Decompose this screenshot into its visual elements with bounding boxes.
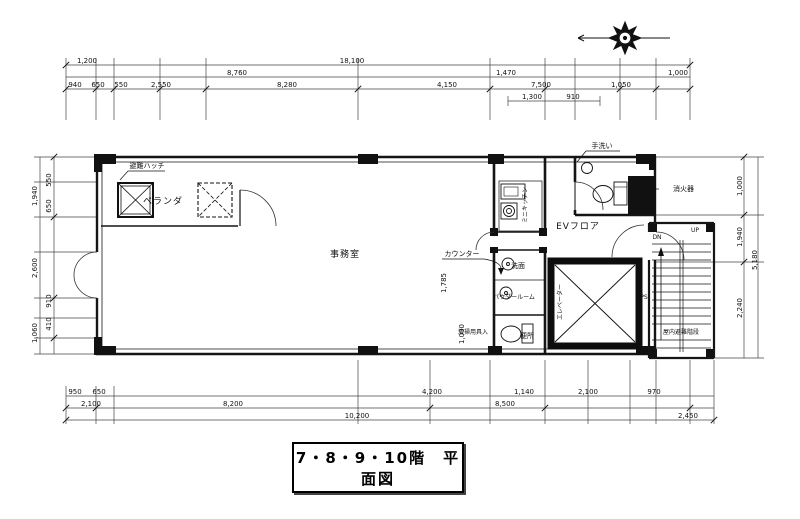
dim-label: 410: [45, 317, 53, 330]
dim-label: 18,100: [340, 57, 365, 65]
room-label-mini-kitchen: ミニキッチン: [522, 187, 529, 223]
room-label-office: 事務室: [330, 248, 360, 260]
dim-label: 940: [68, 81, 81, 89]
dim-label: 2,100: [578, 388, 598, 396]
dim-label: 1,785: [440, 273, 448, 293]
dim-label: 910: [566, 93, 579, 101]
dim-label: 1,140: [514, 388, 534, 396]
dim-label: 550: [114, 81, 127, 89]
stairwell: [649, 223, 714, 358]
dim-label: 1,940: [736, 227, 744, 247]
dim-label: 1,200: [77, 57, 97, 65]
label-escape-hatch: 避難ハッチ: [130, 161, 165, 170]
label-stairs-down: DN: [652, 234, 661, 241]
dim-label: 650: [92, 388, 105, 396]
dim-label: 2,550: [151, 81, 171, 89]
dim-label: 4,200: [422, 388, 442, 396]
dim-label: 1,300: [522, 93, 542, 101]
label-fire-extinguisher: 消火器: [673, 184, 694, 193]
dim-label: 8,500: [495, 400, 515, 408]
dim-label: 650: [91, 81, 104, 89]
dim-label: 8,280: [277, 81, 297, 89]
room-label-ev-floor: EVフロア: [556, 222, 600, 232]
dimension-ticks: [51, 62, 747, 423]
dim-label: 4,150: [437, 81, 457, 89]
room-label-powder-room: パウダールーム: [493, 293, 535, 301]
room-label-washbasin: 洗面: [511, 261, 525, 270]
dim-label: 550: [45, 173, 53, 186]
dim-label: 5,180: [751, 250, 759, 270]
dim-label: 1,000: [458, 324, 466, 344]
north-compass-icon: [578, 22, 670, 54]
dim-label: 2,450: [678, 412, 698, 420]
dim-label: 8,200: [223, 400, 243, 408]
dim-label: 10,200: [345, 412, 370, 420]
annotation-leaders: [120, 151, 659, 275]
dim-label: 2,240: [736, 298, 744, 318]
label-pipe-space: PS: [640, 294, 648, 301]
label-indoor-stairs: 屋内避難階段: [663, 328, 699, 336]
dim-label: 1,060: [31, 323, 39, 343]
label-stairs-up: UP: [691, 227, 699, 234]
dim-label: 650: [45, 199, 53, 212]
dim-label: 1,000: [668, 69, 688, 77]
dim-label: 970: [647, 388, 660, 396]
room-label-elevator: エレベーター: [556, 284, 564, 320]
dim-label: 8,760: [227, 69, 247, 77]
title-block: 7・8・9・10階 平面図: [292, 442, 464, 493]
dim-label: 2,100: [81, 400, 101, 408]
room-label-veranda: ベランダ: [143, 195, 183, 207]
dim-label: 1,470: [496, 69, 516, 77]
dim-label: 1,000: [736, 176, 744, 196]
dim-label: 910: [45, 294, 53, 307]
label-counter: カウンター: [445, 249, 480, 258]
dim-label: 2,600: [31, 258, 39, 278]
label-hand-wash: 手洗い: [592, 141, 613, 150]
drawing-title: 7・8・9・10階 平面図: [296, 449, 460, 488]
elevator-shaft: [551, 261, 639, 346]
floorplan-sheet: 事務室 EVフロア ベランダ ミニキッチン 洗面 パウダールーム 便所 手洗い …: [0, 0, 800, 519]
dim-label: 1,050: [611, 81, 631, 89]
dimension-lines: [34, 58, 764, 424]
dim-label: 1,940: [31, 186, 39, 206]
room-label-toilet: 便所: [520, 331, 534, 340]
dim-label: 950: [68, 388, 81, 396]
dim-label: 7,500: [531, 81, 551, 89]
